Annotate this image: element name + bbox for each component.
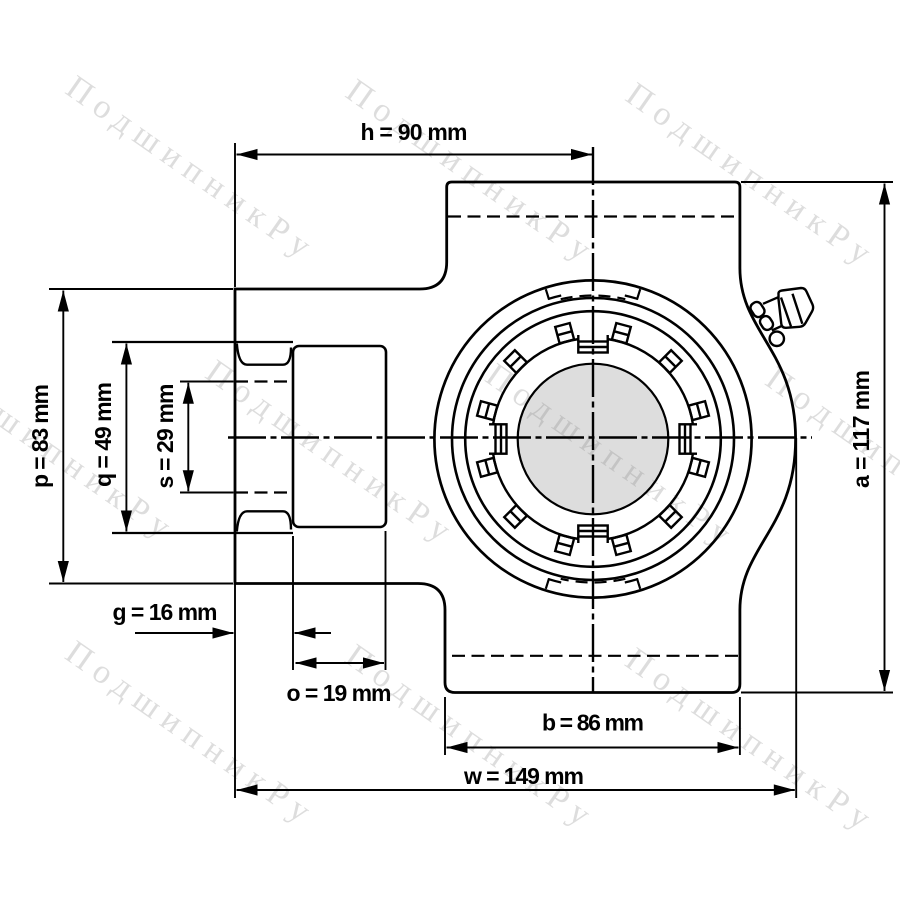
- svg-text:o = 19 mm: o = 19 mm: [287, 680, 392, 706]
- svg-text:g = 16 mm: g = 16 mm: [113, 599, 218, 625]
- svg-text:b = 86 mm: b = 86 mm: [542, 710, 644, 736]
- svg-text:a = 117 mm: a = 117 mm: [848, 370, 874, 488]
- svg-text:s = 29 mm: s = 29 mm: [152, 384, 178, 489]
- svg-text:h = 90 mm: h = 90 mm: [361, 119, 468, 145]
- svg-text:w = 149 mm: w = 149 mm: [463, 763, 584, 789]
- svg-text:q = 49 mm: q = 49 mm: [90, 382, 116, 487]
- svg-text:p = 83 mm: p = 83 mm: [27, 384, 53, 488]
